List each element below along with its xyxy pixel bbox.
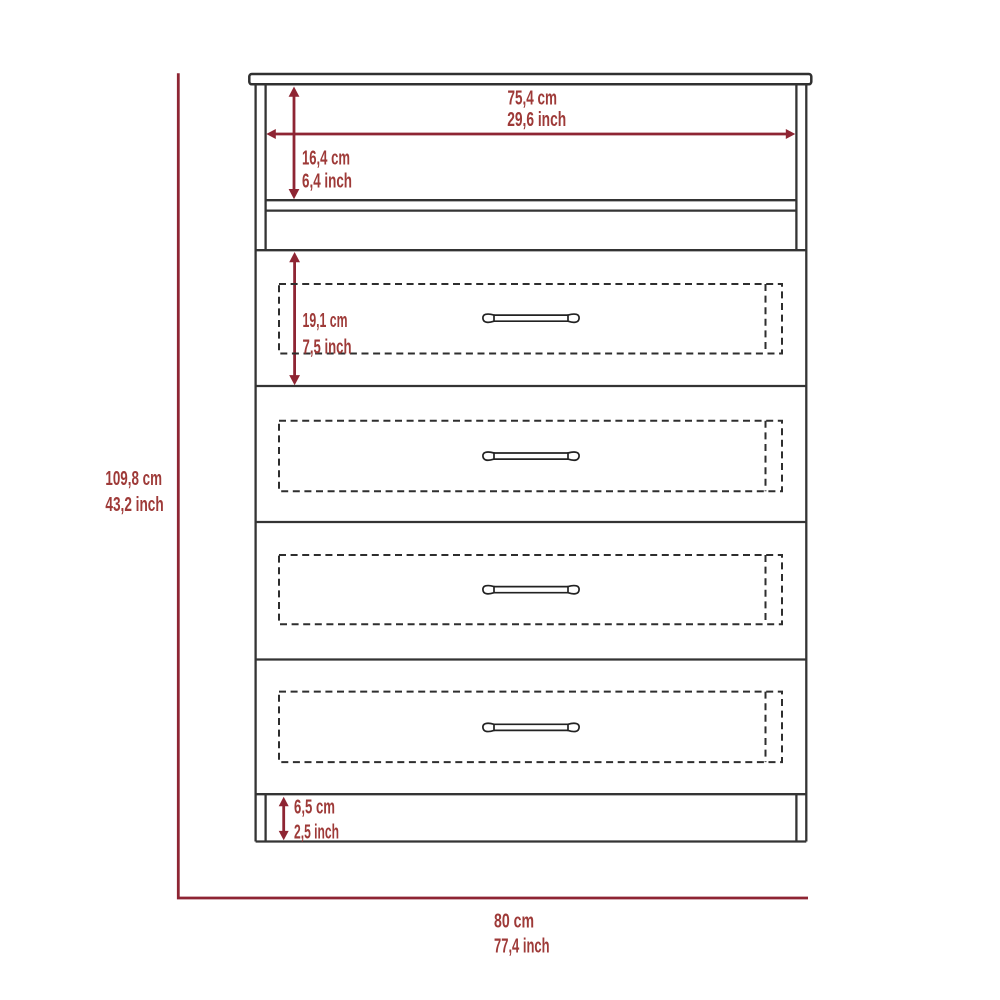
svg-text:77,4 inch: 77,4 inch <box>494 936 550 958</box>
svg-text:2,5 inch: 2,5 inch <box>294 822 339 844</box>
svg-text:43,2 inch: 43,2 inch <box>105 494 163 516</box>
svg-text:80 cm: 80 cm <box>494 911 534 933</box>
svg-text:75,4 cm: 75,4 cm <box>508 88 558 110</box>
svg-text:109,8 cm: 109,8 cm <box>105 468 162 490</box>
svg-text:6,5 cm: 6,5 cm <box>294 797 335 819</box>
svg-text:7,5 inch: 7,5 inch <box>303 336 352 358</box>
svg-text:29,6 inch: 29,6 inch <box>507 109 566 131</box>
svg-text:6,4 inch: 6,4 inch <box>302 170 352 192</box>
svg-text:19,1 cm: 19,1 cm <box>303 310 348 332</box>
svg-text:16,4 cm: 16,4 cm <box>302 147 350 169</box>
